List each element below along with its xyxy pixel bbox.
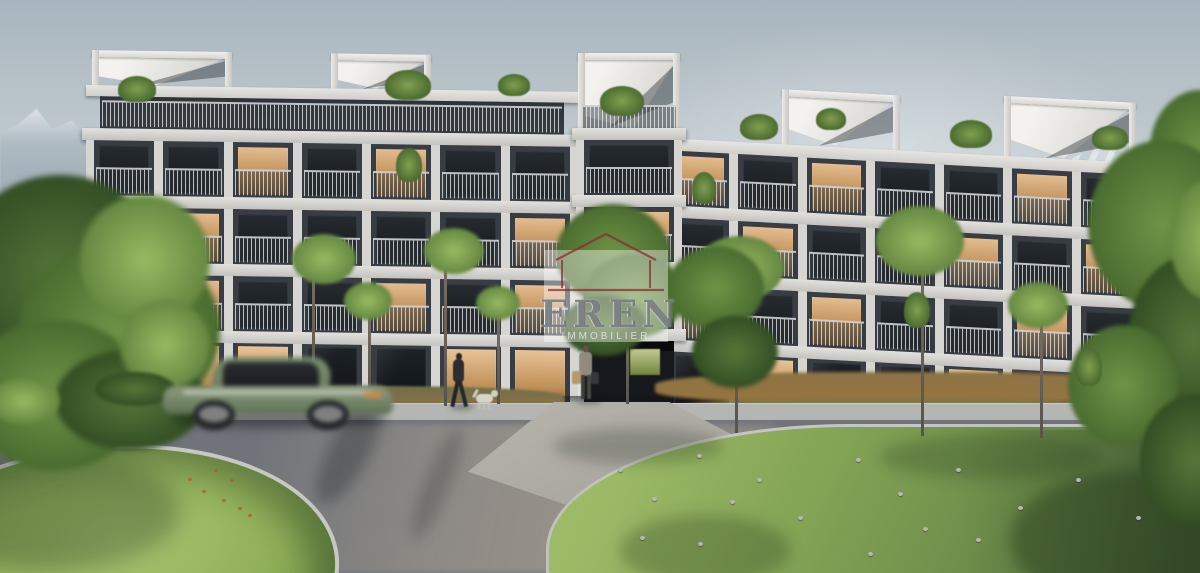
balcony-plant <box>816 108 846 130</box>
car-highlight <box>183 390 373 395</box>
architectural-rendering: EREN IMMOBILIER <box>0 0 1200 573</box>
tree-canopy <box>1008 282 1068 328</box>
balcony-plant <box>498 74 530 96</box>
car-front-light <box>363 392 383 398</box>
dog-head <box>491 390 498 397</box>
balcony-plant <box>740 114 778 140</box>
dog-leg <box>488 402 490 409</box>
head <box>583 345 589 352</box>
tree-canopy <box>424 228 484 274</box>
balcony-plant <box>118 76 156 102</box>
watermark-subtitle: IMMOBILIER <box>540 331 672 342</box>
tree-canopy <box>692 316 778 388</box>
tree-canopy <box>876 206 964 276</box>
car-window <box>223 362 319 386</box>
balcony-plant <box>692 172 716 204</box>
balcony-plant <box>385 70 431 100</box>
balcony-plant <box>904 292 930 328</box>
leg <box>458 381 468 407</box>
balcony-plant <box>1092 126 1128 150</box>
pedestrian-with-bags <box>574 345 600 403</box>
balcony-plant <box>600 86 644 116</box>
torso <box>453 359 464 383</box>
wheel-blur <box>313 406 343 422</box>
leg <box>581 375 585 399</box>
car <box>163 350 395 434</box>
wheel-blur <box>199 406 229 422</box>
tree-canopy <box>292 234 356 284</box>
balcony-plant <box>396 148 422 182</box>
dog-leg <box>483 402 485 409</box>
house-outline-icon <box>546 230 666 296</box>
balcony-plant <box>950 120 992 148</box>
shopping-bag <box>572 371 581 384</box>
pedestrian-walking <box>449 350 469 410</box>
tree-canopy <box>476 286 520 320</box>
dog-leg <box>478 402 480 409</box>
tree-canopy <box>344 282 392 320</box>
dog <box>476 387 502 411</box>
balcony-plant <box>1076 348 1102 386</box>
shopping-bag <box>591 372 599 384</box>
watermark-name: EREN <box>540 292 672 336</box>
